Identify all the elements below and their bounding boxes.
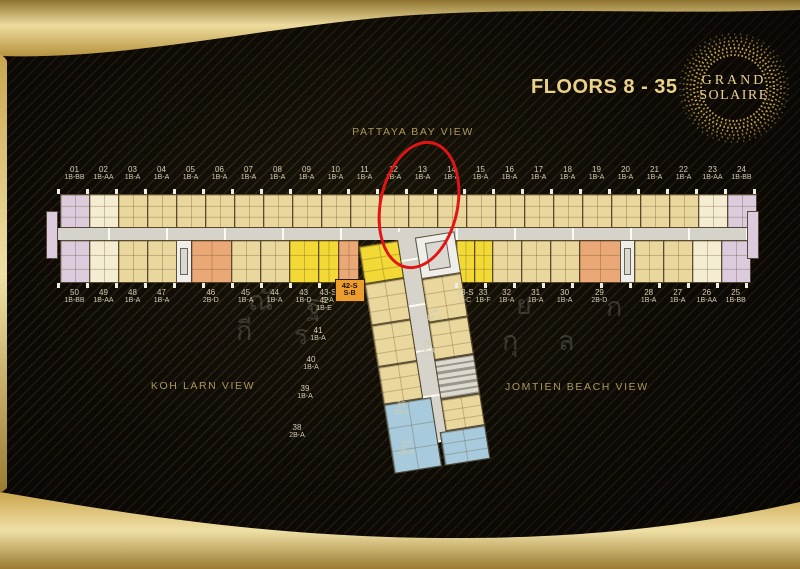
unit-46[interactable] xyxy=(191,240,233,283)
floors-title: FLOORS 8 - 35 xyxy=(531,76,663,99)
unit-22[interactable] xyxy=(669,194,699,228)
unit-label-35: 351B-A xyxy=(407,339,447,357)
unit-highlight-label-42-S: 42-SS-B xyxy=(335,279,365,302)
unit-18[interactable] xyxy=(553,194,583,228)
unit-42-S[interactable] xyxy=(338,240,359,283)
unit-50[interactable] xyxy=(60,240,90,283)
unit-label-41: 411B-A xyxy=(298,326,338,344)
unit-02[interactable] xyxy=(89,194,119,228)
unit-label-40: 401B-A xyxy=(291,355,331,373)
unit-03[interactable] xyxy=(118,194,148,228)
view-label-koh-larn: KOH LARN VIEW xyxy=(133,380,273,392)
unit-41[interactable] xyxy=(365,278,411,326)
unit-45[interactable] xyxy=(231,240,261,283)
unit-10[interactable] xyxy=(321,194,351,228)
unit-16[interactable] xyxy=(495,194,525,228)
unit-19[interactable] xyxy=(582,194,612,228)
logo-line2: SOLAIRE xyxy=(683,88,785,104)
east-end-wing xyxy=(747,211,759,259)
west-end-wing xyxy=(46,211,58,259)
elevator-core xyxy=(620,240,636,283)
unit-15[interactable] xyxy=(466,194,496,228)
unit-28[interactable] xyxy=(634,240,664,283)
unit-label-38: 382B-A xyxy=(277,423,317,441)
unit-39[interactable] xyxy=(378,361,423,405)
unit-49[interactable] xyxy=(89,240,119,283)
unit-33[interactable] xyxy=(474,240,493,283)
unit-09[interactable] xyxy=(292,194,322,228)
unit-04[interactable] xyxy=(147,194,177,228)
unit-30[interactable] xyxy=(550,240,580,283)
floorplan-page: FLOORS 8 - 35 GRAND SOLAIRE PATTAYA BAY … xyxy=(0,0,800,569)
stem-machine-room xyxy=(434,354,480,400)
unit-01[interactable] xyxy=(60,194,90,228)
unit-label-29: 292B-D xyxy=(573,288,626,306)
elevator-core xyxy=(176,240,192,283)
view-label-pattaya-bay: PATTAYA BAY VIEW xyxy=(343,126,483,138)
unit-48[interactable] xyxy=(118,240,148,283)
unit-17[interactable] xyxy=(524,194,554,228)
unit-label-24: 241B-BB xyxy=(721,165,762,183)
unit-23[interactable] xyxy=(698,194,728,228)
unit-47[interactable] xyxy=(147,240,177,283)
logo-line1: GRAND xyxy=(683,73,785,88)
unit-07[interactable] xyxy=(234,194,264,228)
unit-29[interactable] xyxy=(579,240,621,283)
unit-label-25: 251B-BB xyxy=(715,288,756,306)
unit-37[interactable] xyxy=(440,425,491,466)
unit-26[interactable] xyxy=(692,240,722,283)
unit-43[interactable] xyxy=(289,240,319,283)
unit-21[interactable] xyxy=(640,194,670,228)
unit-08[interactable] xyxy=(263,194,293,228)
unit-05[interactable] xyxy=(176,194,206,228)
unit-label-36: 361B-A xyxy=(381,400,421,418)
unit-32[interactable] xyxy=(492,240,522,283)
unit-27[interactable] xyxy=(663,240,693,283)
unit-label-34: 341B-A xyxy=(414,306,454,324)
grand-solaire-logo-text: GRAND SOLAIRE xyxy=(683,73,785,104)
unit-11[interactable] xyxy=(350,194,380,228)
unit-31[interactable] xyxy=(521,240,551,283)
unit-44[interactable] xyxy=(260,240,290,283)
unit-20[interactable] xyxy=(611,194,641,228)
unit-label-47: 471B-A xyxy=(141,288,182,306)
unit-label-39: 391B-A xyxy=(285,384,325,402)
unit-43-S[interactable] xyxy=(318,240,339,283)
unit-06[interactable] xyxy=(205,194,235,228)
view-label-jomtien-beach: JOMTIEN BEACH VIEW xyxy=(505,381,645,393)
unit-label-37: 372B-A xyxy=(386,440,426,458)
